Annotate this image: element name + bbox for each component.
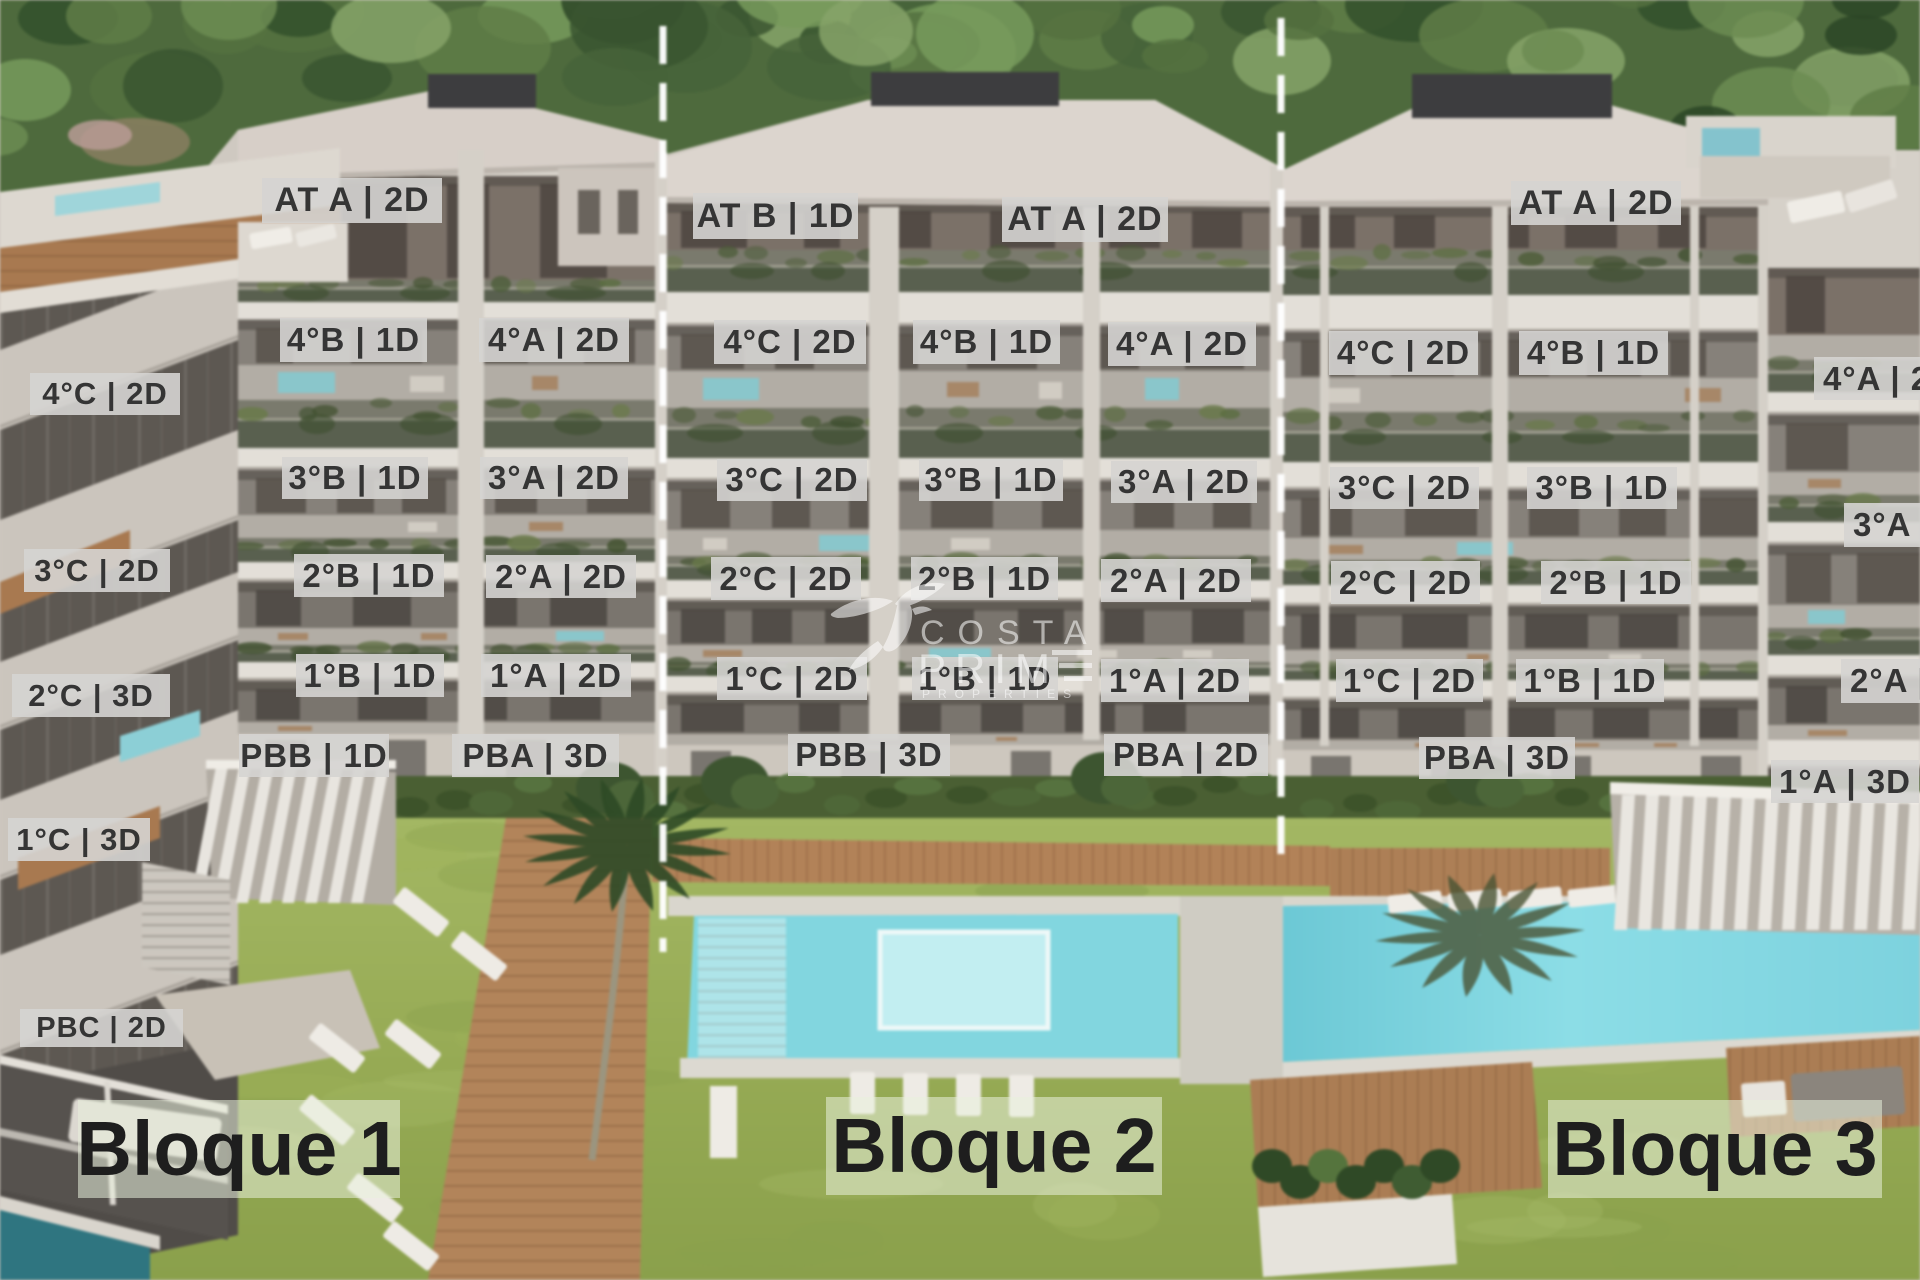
svg-text:PRIM: PRIM (918, 645, 1059, 692)
svg-text:PROPERTIES: PROPERTIES (922, 687, 1079, 701)
